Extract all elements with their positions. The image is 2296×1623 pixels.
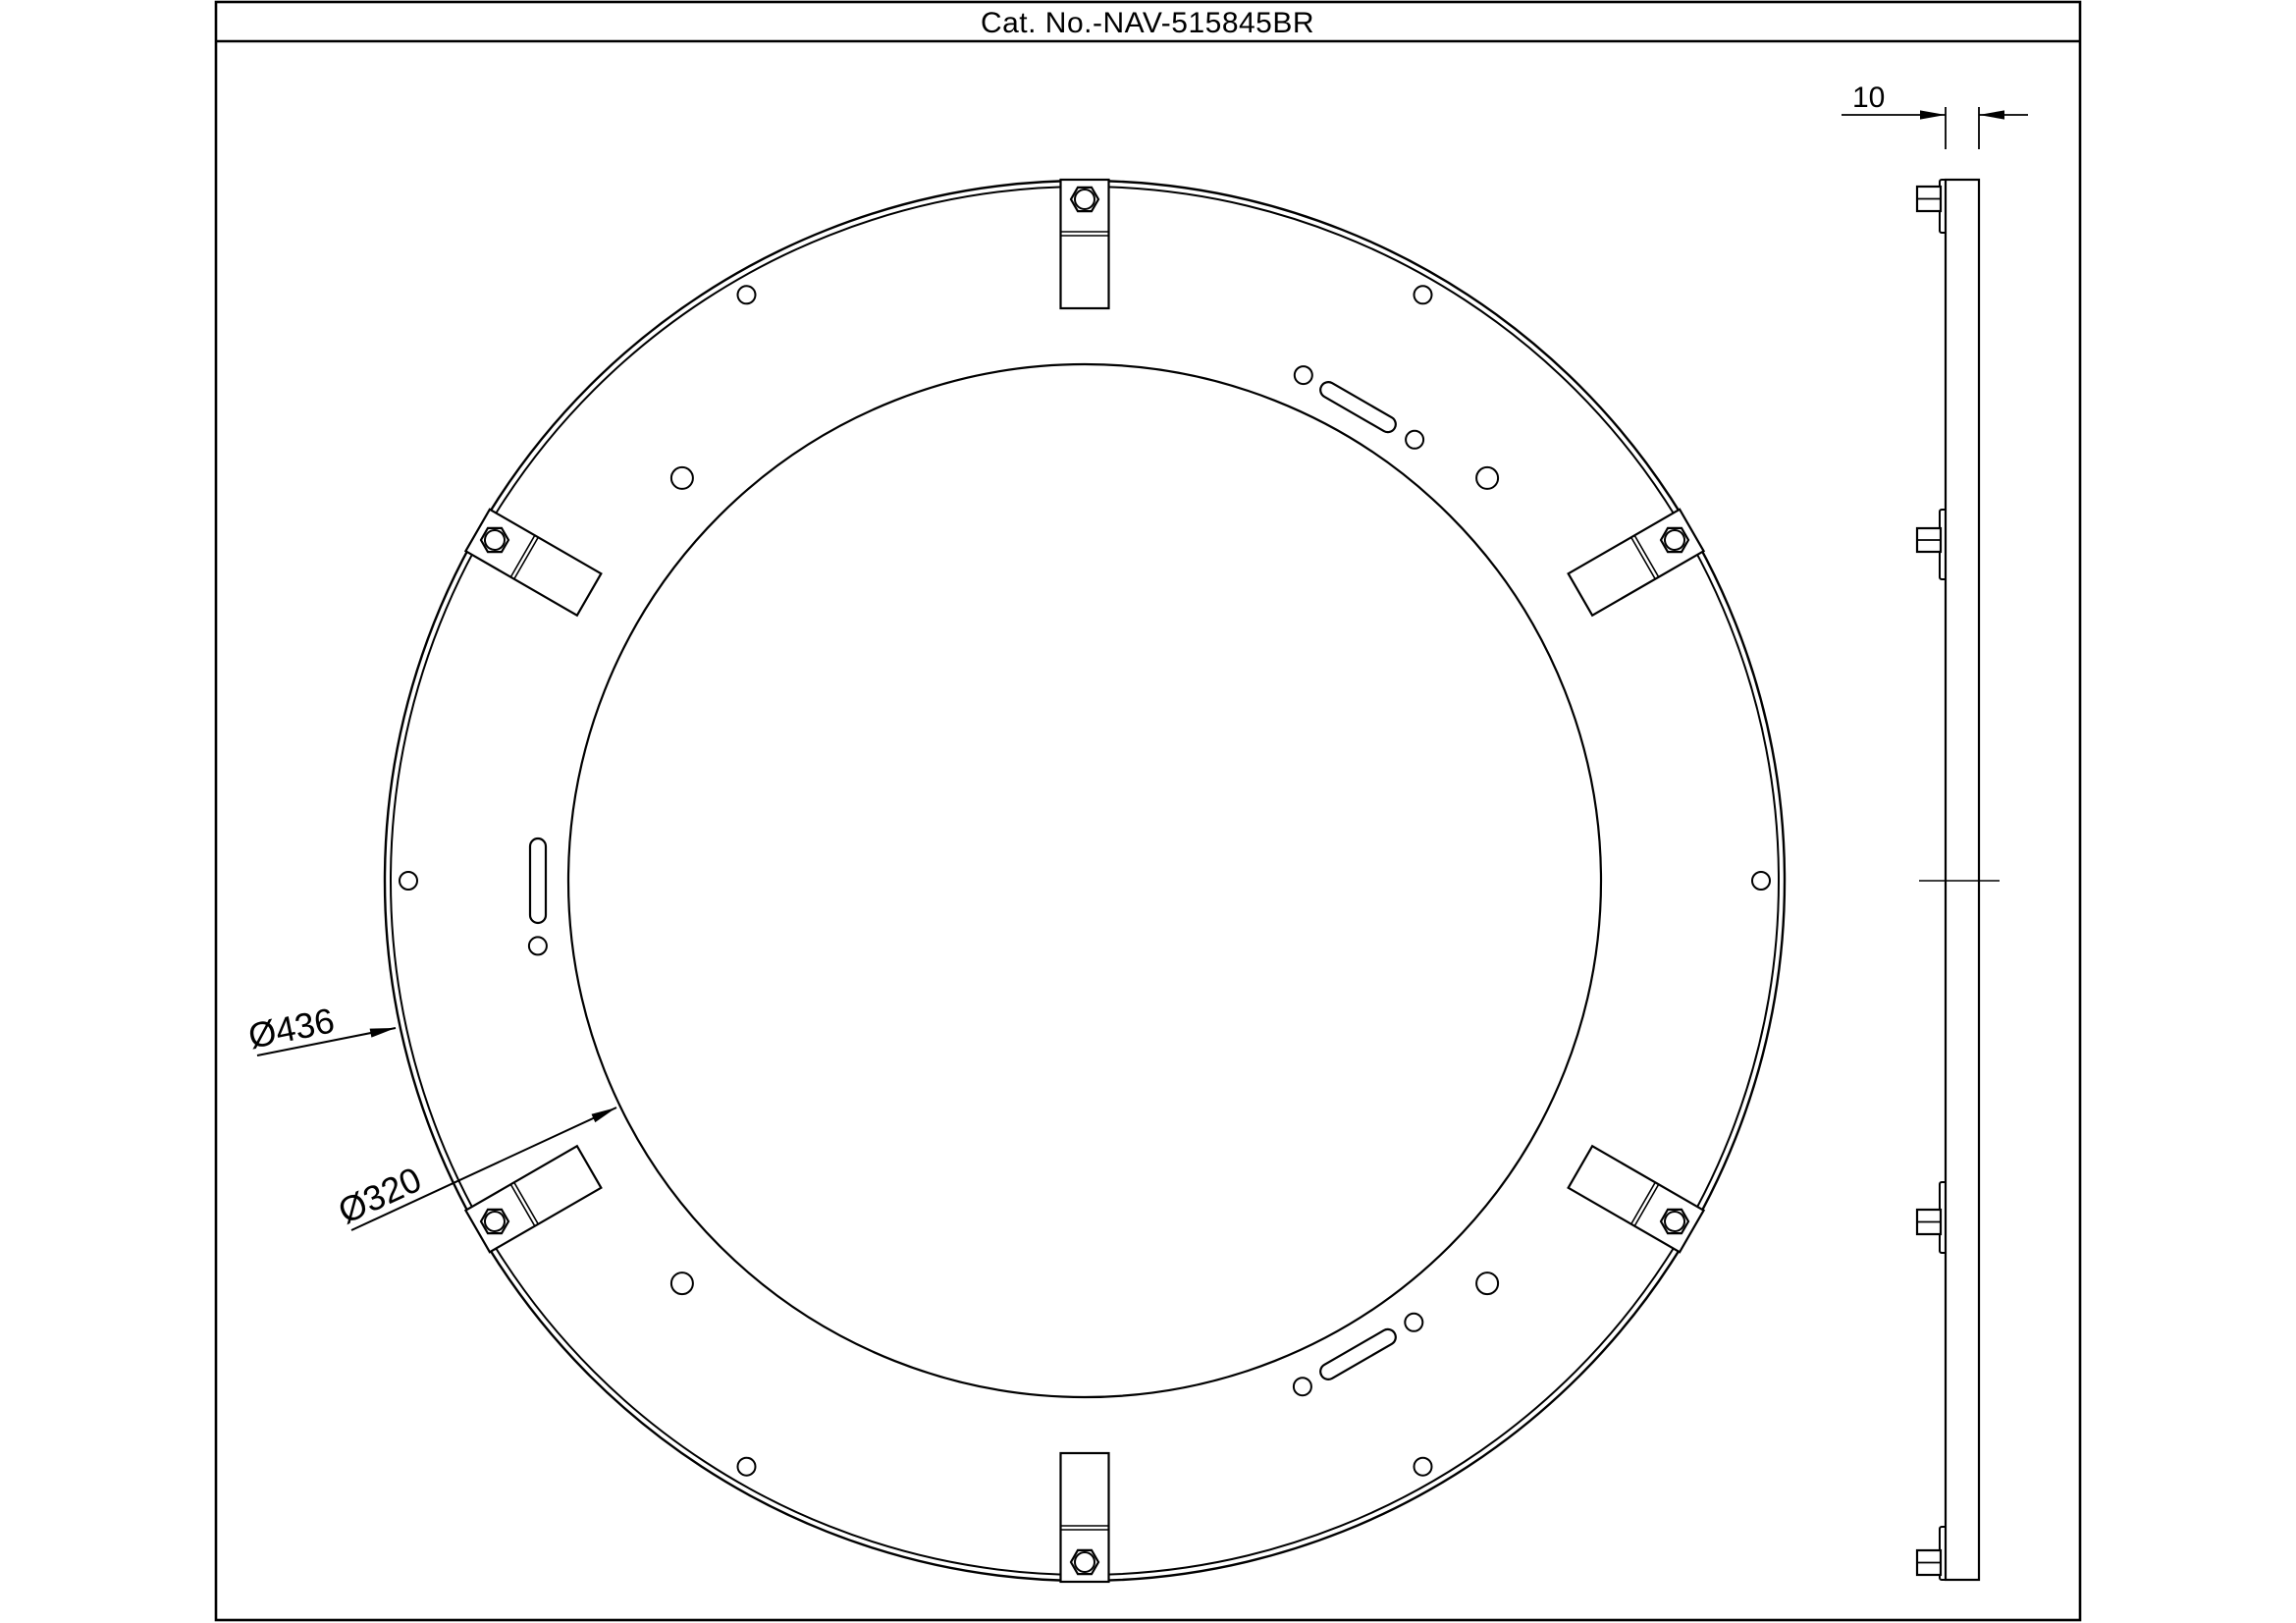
leader-arrow	[592, 1108, 617, 1122]
pattern-hole	[1406, 431, 1423, 449]
pattern-hole	[1476, 467, 1498, 489]
drawing-frame	[216, 2, 2080, 1620]
mounting-tab	[1061, 180, 1109, 308]
technical-drawing: Cat. No.-NAV-515845BR Ø436 Ø320 10	[0, 0, 2296, 1623]
rim-circle	[391, 187, 1779, 1575]
tab-outline	[465, 510, 601, 616]
plate-outline	[1946, 180, 1979, 1580]
pattern-hole	[671, 1272, 693, 1294]
mounting-slot-group	[530, 839, 546, 923]
pattern-hole	[738, 1458, 756, 1476]
tab-outline	[465, 1146, 601, 1252]
tab-outline	[1569, 1146, 1704, 1252]
mounting-tab	[1061, 1453, 1109, 1582]
diameter-annotations: Ø436 Ø320	[245, 1000, 428, 1231]
front-view	[257, 180, 1785, 1582]
drawing-title: Cat. No.-NAV-515845BR	[981, 7, 1314, 39]
inner-circle	[568, 364, 1601, 1397]
pattern-hole	[738, 286, 756, 303]
side-view	[1917, 180, 2000, 1580]
mounting-tab	[465, 1146, 601, 1252]
pattern-hole	[1752, 872, 1770, 890]
pattern-hole	[1295, 366, 1312, 384]
diameter-label-436: Ø436	[245, 1000, 338, 1055]
leader-arrow	[370, 1028, 396, 1038]
thickness-label: 10	[1852, 81, 1885, 114]
dimension-arrow	[1979, 110, 2004, 119]
pattern-hole	[1405, 1314, 1422, 1331]
mounting-slot	[530, 839, 546, 923]
mounting-tab	[1569, 510, 1704, 616]
pattern-hole	[529, 937, 547, 954]
tab-outline	[1569, 510, 1704, 616]
drawing-sheet: Cat. No.-NAV-515845BR Ø436 Ø320 10	[0, 0, 2296, 1623]
title-block: Cat. No.-NAV-515845BR	[216, 2, 2080, 1620]
mounting-tab	[1569, 1146, 1704, 1252]
mounting-tab	[465, 510, 601, 616]
pattern-hole	[1415, 286, 1432, 303]
pattern-hole	[671, 467, 693, 489]
pattern-hole	[400, 872, 417, 890]
diameter-label-320: Ø320	[332, 1159, 427, 1231]
outer-circle	[385, 181, 1785, 1581]
thickness-dimension: 10	[1842, 81, 2028, 149]
dimension-arrow	[1920, 110, 1946, 119]
pattern-hole	[1294, 1378, 1311, 1395]
pattern-hole	[1476, 1272, 1498, 1294]
pattern-hole	[1415, 1458, 1432, 1476]
